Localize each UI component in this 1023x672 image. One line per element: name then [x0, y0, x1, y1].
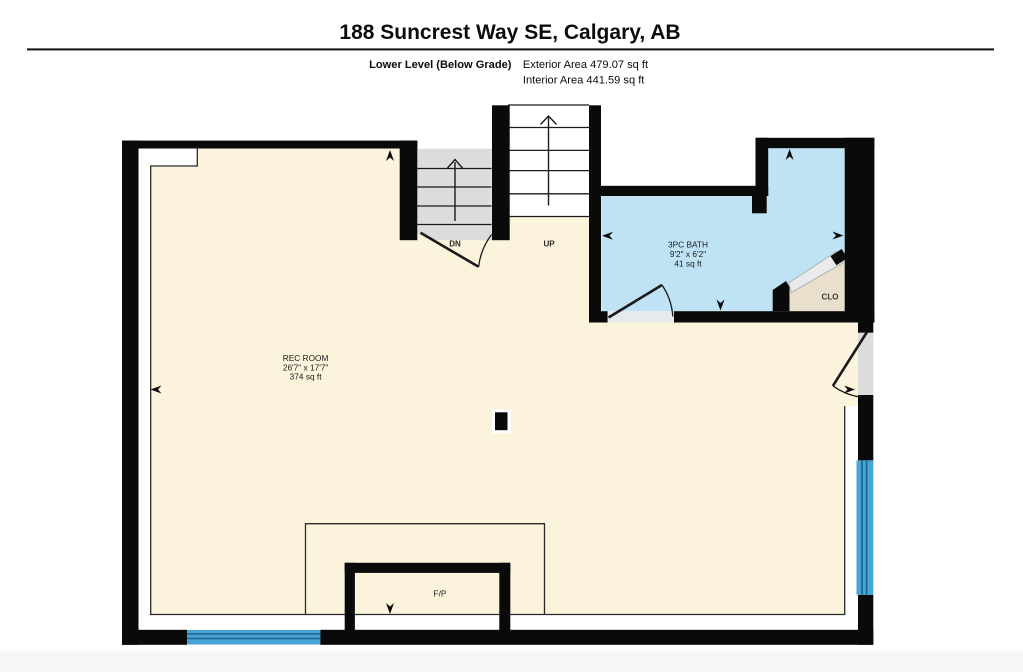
svg-text:DN: DN	[449, 240, 461, 249]
svg-text:F/P: F/P	[434, 589, 447, 599]
svg-text:374 sq ft: 374 sq ft	[290, 372, 323, 382]
svg-text:3PC BATH: 3PC BATH	[668, 240, 708, 250]
svg-text:Interior Area 441.59 sq ft: Interior Area 441.59 sq ft	[523, 75, 645, 87]
svg-text:41 sq ft: 41 sq ft	[674, 259, 702, 269]
svg-text:9'2" x 6'2": 9'2" x 6'2"	[670, 249, 706, 259]
svg-text:Lower Level (Below Grade): Lower Level (Below Grade)	[369, 59, 512, 71]
svg-text:Exterior Area 479.07 sq ft: Exterior Area 479.07 sq ft	[523, 59, 648, 71]
svg-text:CLO: CLO	[822, 293, 839, 302]
svg-text:188 Suncrest Way SE, Calgary,: 188 Suncrest Way SE, Calgary, AB	[339, 21, 680, 44]
svg-text:UP: UP	[543, 240, 555, 249]
